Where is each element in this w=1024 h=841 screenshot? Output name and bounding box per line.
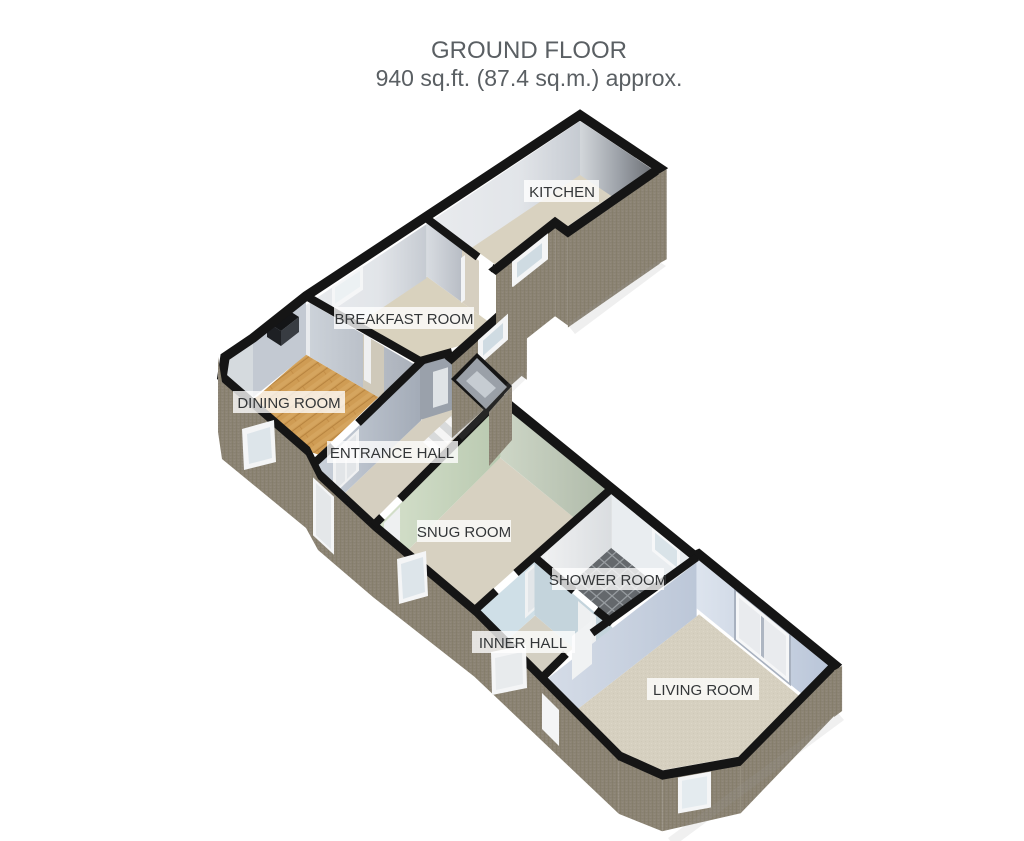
svg-text:SHOWER ROOM: SHOWER ROOM: [549, 572, 667, 589]
svg-text:SNUG ROOM: SNUG ROOM: [417, 524, 511, 541]
svg-text:940 sq.ft. (87.4 sq.m.) approx: 940 sq.ft. (87.4 sq.m.) approx.: [376, 65, 683, 91]
svg-text:ENTRANCE HALL: ENTRANCE HALL: [330, 445, 454, 462]
svg-text:DINING ROOM: DINING ROOM: [237, 395, 340, 412]
svg-text:KITCHEN: KITCHEN: [529, 184, 595, 201]
svg-text:LIVING ROOM: LIVING ROOM: [653, 682, 753, 699]
svg-text:INNER HALL: INNER HALL: [479, 635, 567, 652]
svg-text:GROUND FLOOR: GROUND FLOOR: [431, 37, 627, 64]
svg-text:BREAKFAST ROOM: BREAKFAST ROOM: [335, 311, 474, 328]
